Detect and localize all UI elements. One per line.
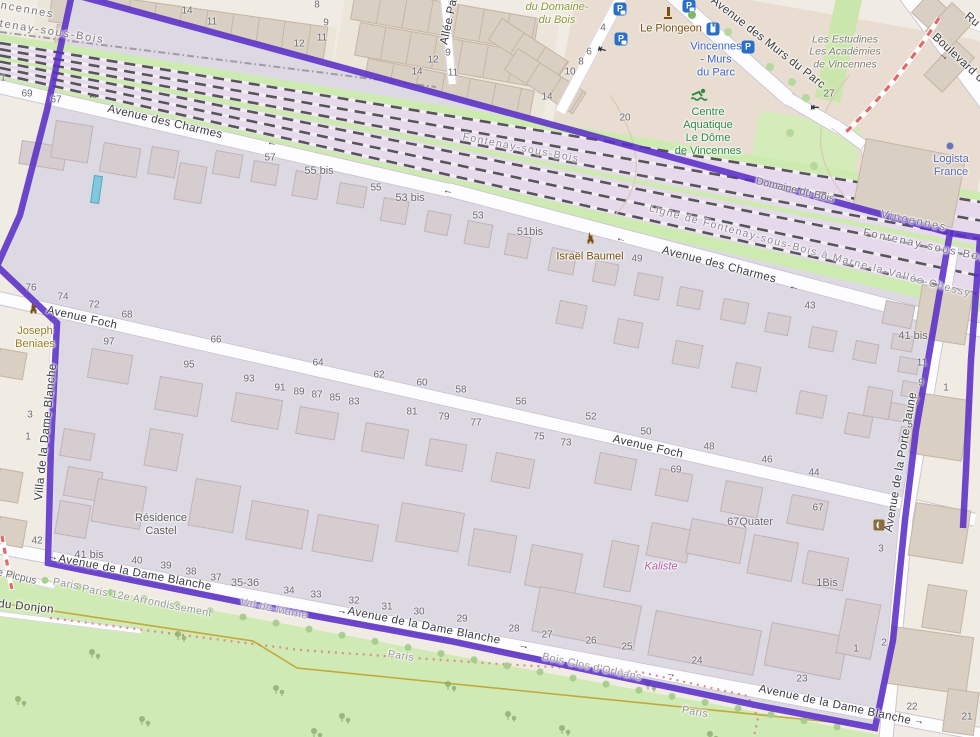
building [897,356,919,375]
building [633,272,663,301]
building [336,182,367,209]
building [908,502,972,564]
building [250,160,279,186]
building [0,516,28,548]
building [795,390,827,419]
building [90,478,147,530]
building [143,428,183,471]
building [380,197,410,225]
building [720,298,750,325]
building [863,386,894,420]
building [154,376,203,417]
building [764,312,791,336]
building [467,528,517,573]
building [676,286,703,310]
building [54,500,91,539]
building [921,584,967,634]
building [888,402,913,424]
building [147,146,179,178]
building [463,220,493,249]
building [547,247,577,276]
building [731,362,761,392]
building [908,392,971,462]
map-canvas[interactable]: Avenue des CharmesAvenue des CharmesAven… [0,0,980,737]
building [424,210,452,236]
building [852,340,879,364]
building [291,170,321,200]
building [613,318,643,348]
building [504,233,532,259]
building [212,150,244,178]
building [914,284,974,345]
building [59,428,95,461]
building [720,480,763,519]
building [885,626,974,695]
building [592,260,620,286]
building [942,688,980,736]
building [188,478,242,533]
building [746,534,799,582]
building [555,300,587,329]
building [0,348,28,380]
building [50,120,93,163]
building [671,340,703,369]
building [594,452,637,491]
building [808,326,838,353]
building [99,142,142,178]
